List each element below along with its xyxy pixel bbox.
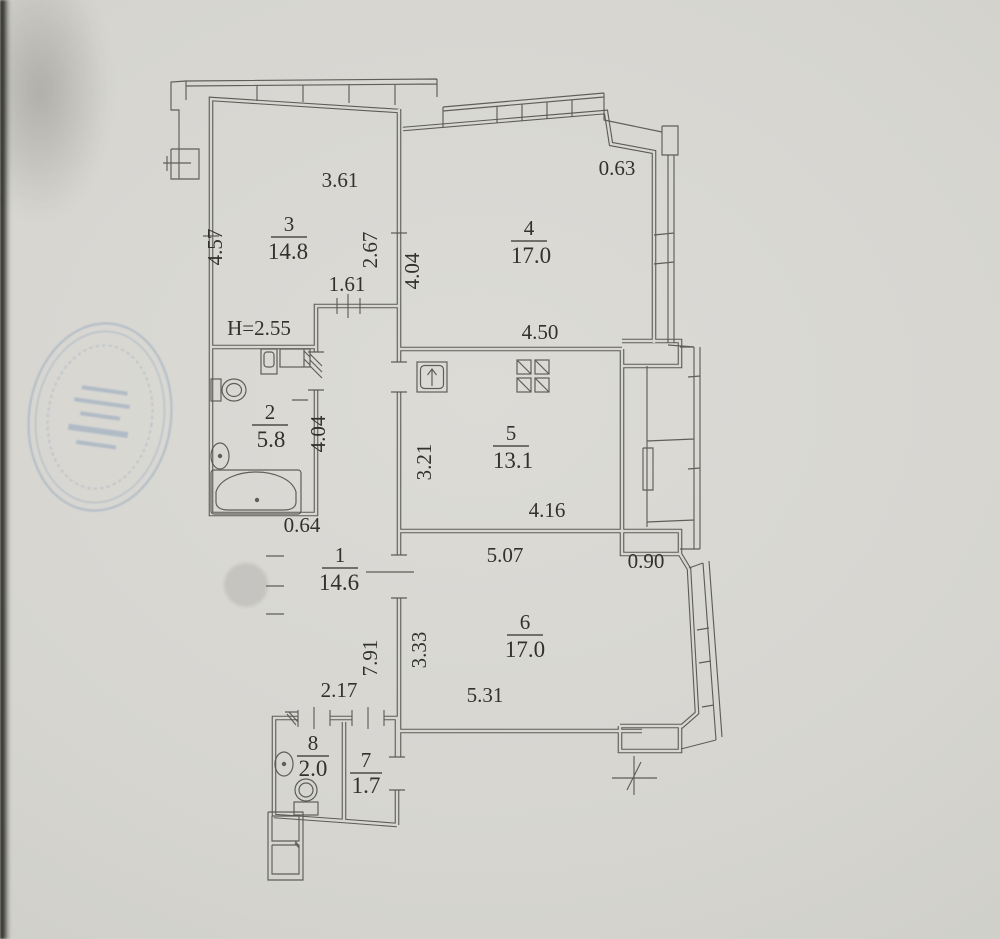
dimension-label: 3.21 [412,444,436,481]
dimension-label: 0.64 [284,513,321,537]
room-area: 1.7 [352,773,381,798]
dimension-label: 0.90 [628,549,665,573]
dimension-label: 7.91 [358,640,382,677]
room-5-label: 5 13.1 [493,421,533,473]
window-room4-right [654,155,694,347]
room-7-label: 7 1.7 [350,748,382,798]
dimension-label: 4.16 [529,498,566,522]
dimension-label: 4.50 [522,320,559,344]
hole-punch-mark [224,563,268,607]
room-area: 2.0 [299,756,328,781]
stove-icon [517,360,549,392]
room-6-label: 6 17.0 [505,610,545,662]
room-number: 1 [335,543,346,567]
room-number: 4 [524,216,535,240]
wall-lines-dark [211,99,697,825]
loggia-room5-right [643,347,700,549]
kitchen-sink-icon [417,362,447,392]
room-labels: 3 14.8 4 17.0 2 5.8 5 13.1 1 [252,212,551,798]
ceiling-height-label: H=2.55 [227,316,291,340]
room-area: 14.6 [319,570,359,595]
corner-shade [0,0,110,220]
bathtub-icon [211,470,301,514]
dimension-label: 2.67 [358,232,382,269]
washing-machine-icon [261,349,277,374]
dimension-label: 1.61 [329,272,366,296]
dimension-label: 3.61 [322,168,359,192]
wc-toilet-icon [294,779,318,815]
room-number: 3 [284,212,295,236]
level-mark-icon [612,756,657,795]
shelf-cabinet-icon [280,349,310,367]
room-number: 5 [506,421,517,445]
dimension-label: 5.31 [467,683,504,707]
room-area: 17.0 [511,243,551,268]
stamp-center-text [66,386,133,449]
walls [211,99,697,825]
room-3-label: 3 14.8 [268,212,308,264]
room-4-label: 4 17.0 [511,216,551,268]
dimension-label: 2.17 [321,678,358,702]
dimension-label: 5.07 [487,543,524,567]
photographed-floor-plan-page: 3 14.8 4 17.0 2 5.8 5 13.1 1 [0,0,1000,939]
dimension-label: 4.04 [400,252,424,289]
room-area: 5.8 [257,427,286,452]
room-area: 13.1 [493,448,533,473]
ventilation-shaft-icon [268,812,303,880]
room-2-label: 2 5.8 [252,400,288,452]
windows-balconies [163,79,722,880]
dimension-label: 4.57 [203,229,227,266]
room-1-label: 1 14.6 [319,543,359,595]
room-8-label: 8 2.0 [297,731,329,781]
room-number: 7 [361,748,372,772]
washbasin-icon [211,443,229,469]
room-area: 14.8 [268,239,308,264]
room-number: 2 [265,400,276,424]
wc-washbasin-icon [275,752,293,776]
dimension-label: 0.63 [599,156,636,180]
room-area: 17.0 [505,637,545,662]
room-number: 6 [520,610,531,634]
dimension-label: 4.04 [306,415,330,452]
floor-plan: 3 14.8 4 17.0 2 5.8 5 13.1 1 [0,0,1000,939]
toilet-icon [211,379,246,401]
room-number: 8 [308,731,319,755]
stamp-watermark [17,314,184,520]
dimension-label: 3.33 [407,632,431,669]
